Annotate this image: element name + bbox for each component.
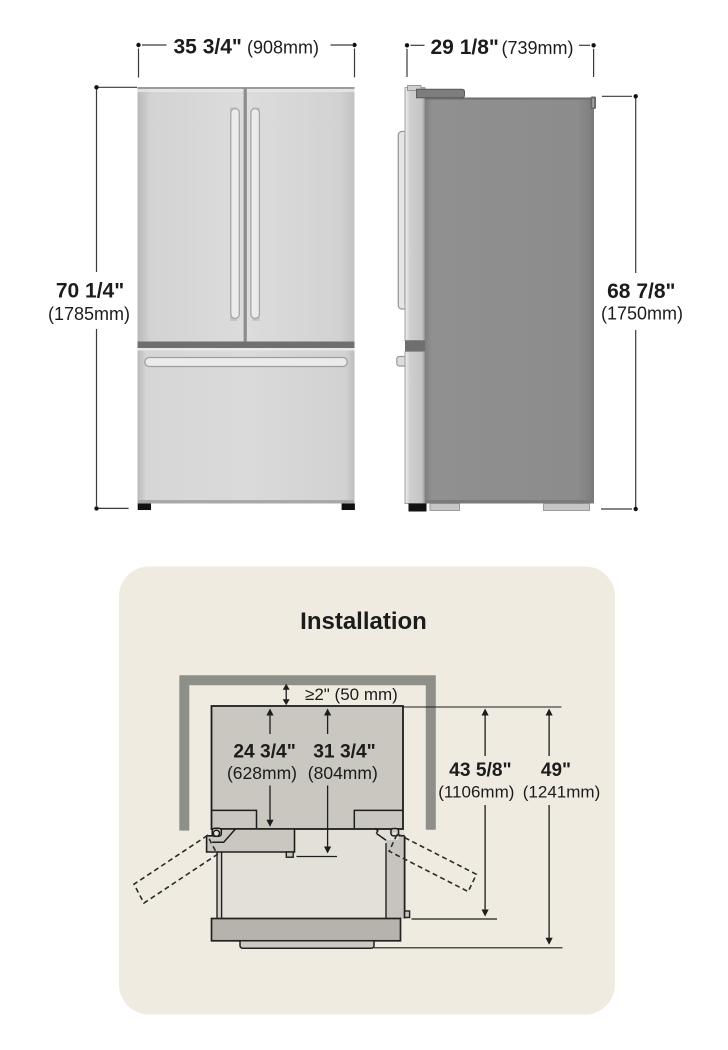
svg-text:70 1/4": 70 1/4" [56,279,124,302]
svg-text:(1106mm): (1106mm) [438,783,514,802]
svg-text:(1750mm): (1750mm) [601,303,683,323]
svg-text:31 3/4": 31 3/4" [313,741,375,762]
svg-text:(804mm): (804mm) [308,763,378,783]
svg-text:(628mm): (628mm) [227,763,297,783]
svg-text:24 3/4": 24 3/4" [233,741,295,762]
svg-text:29 1/8": 29 1/8" [431,36,499,59]
svg-text:(1241mm): (1241mm) [523,783,600,802]
svg-text:(739mm): (739mm) [502,38,574,58]
svg-text:(908mm): (908mm) [247,38,319,58]
svg-text:35 3/4": 35 3/4" [174,36,242,59]
svg-text:43 5/8": 43 5/8" [449,760,511,781]
svg-text:(1785mm): (1785mm) [48,304,130,324]
svg-text:49": 49" [541,760,571,781]
svg-text:68 7/8": 68 7/8" [607,280,675,303]
svg-text:Installation: Installation [300,608,427,635]
svg-text:≥2" (50 mm): ≥2" (50 mm) [305,685,398,704]
